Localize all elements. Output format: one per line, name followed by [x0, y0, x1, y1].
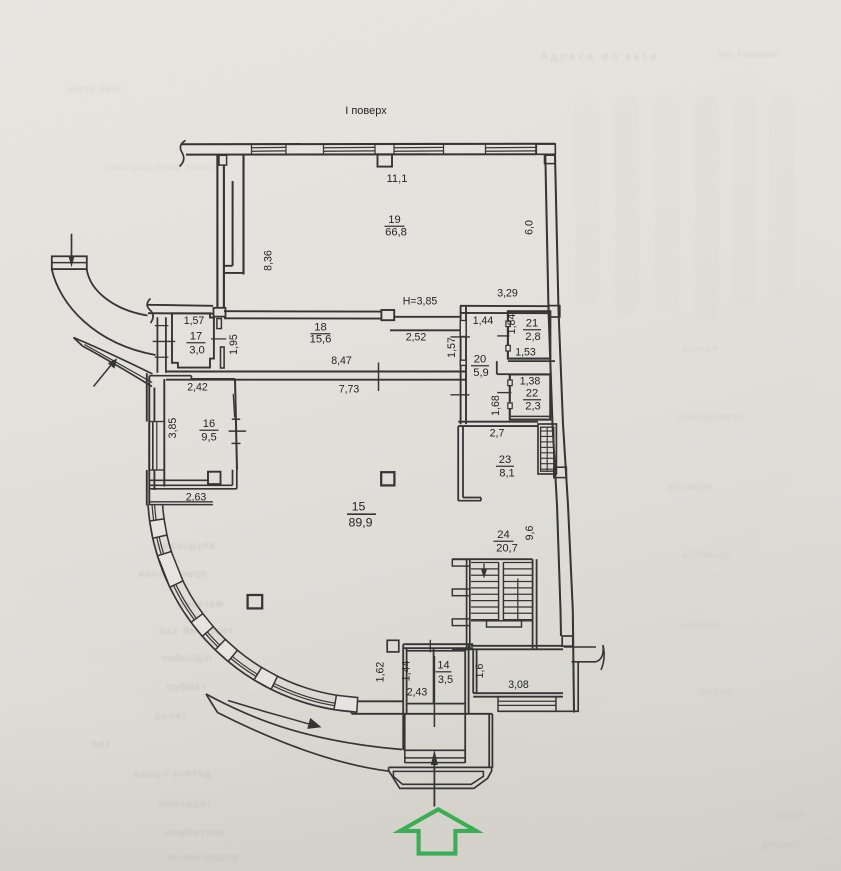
svg-text:1,84: 1,84 [506, 314, 518, 335]
svg-text:Н=3,85: Н=3,85 [403, 296, 438, 308]
svg-text:22: 22 [526, 388, 538, 400]
svg-text:зал: зал [90, 738, 110, 750]
svg-text:примітки: примітки [681, 550, 729, 561]
svg-text:89,9: 89,9 [348, 516, 372, 530]
svg-text:2,63: 2,63 [186, 492, 207, 504]
svg-text:роздягальня: роздягальня [166, 851, 237, 863]
svg-text:20: 20 [474, 354, 486, 366]
svg-text:3,0: 3,0 [189, 345, 205, 357]
svg-text:корисна: корисна [668, 482, 712, 493]
svg-text:24: 24 [497, 529, 509, 541]
svg-text:2,7: 2,7 [490, 428, 505, 440]
svg-text:66,8: 66,8 [385, 227, 407, 239]
svg-text:9,5: 9,5 [201, 432, 217, 444]
svg-text:8,47: 8,47 [331, 355, 352, 367]
svg-text:1,68: 1,68 [490, 395, 502, 416]
svg-text:2,52: 2,52 [406, 332, 427, 344]
svg-text:1,44: 1,44 [473, 315, 494, 327]
svg-text:реєстраційний запис: реєстраційний запис [105, 162, 215, 173]
svg-text:2,42: 2,42 [187, 382, 208, 394]
svg-text:16: 16 [203, 418, 215, 430]
svg-text:І поверх: І поверх [345, 105, 387, 117]
svg-text:разом: разом [699, 687, 732, 698]
svg-text:1,38: 1,38 [520, 376, 541, 388]
svg-text:2,8: 2,8 [525, 331, 541, 343]
svg-text:склад: склад [153, 710, 186, 722]
svg-text:печатка: печатка [762, 840, 798, 851]
svg-text:17: 17 [190, 331, 202, 343]
svg-text:приміщення: приміщення [677, 412, 743, 423]
svg-text:20,7: 20,7 [496, 543, 518, 555]
svg-text:тамбур: тамбур [166, 681, 206, 693]
svg-text:1,53: 1,53 [515, 347, 536, 359]
svg-text:11,1: 11,1 [387, 173, 408, 185]
svg-text:21: 21 [526, 318, 538, 330]
svg-text:19: 19 [388, 214, 400, 226]
svg-text:1,57: 1,57 [184, 315, 205, 327]
svg-text:вул. Гарматна: вул. Гарматна [719, 49, 778, 59]
svg-text:підпис: підпис [775, 810, 804, 821]
svg-text:2,43: 2,43 [407, 687, 428, 699]
svg-text:балкон: балкон [681, 619, 719, 631]
svg-text:14: 14 [437, 660, 449, 672]
svg-text:6,0: 6,0 [524, 220, 536, 235]
svg-text:гардероб: гардероб [158, 798, 211, 810]
svg-text:9,6: 9,6 [524, 526, 536, 541]
svg-text:площа: площа [682, 344, 718, 355]
svg-text:3,29: 3,29 [497, 288, 518, 300]
svg-text:Адреса об'єкта: Адреса об'єкта [541, 51, 660, 63]
svg-text:15,6: 15,6 [310, 334, 332, 346]
svg-text:23: 23 [499, 454, 511, 466]
svg-text:дитяча ігрова: дитяча ігрова [133, 768, 212, 780]
svg-text:1,44: 1,44 [401, 661, 413, 682]
svg-text:7,73: 7,73 [339, 384, 360, 396]
svg-text:1,95: 1,95 [228, 334, 240, 355]
svg-text:вестибюль: вестибюль [163, 827, 224, 839]
svg-text:підсобне: підсобне [160, 652, 211, 664]
svg-text:8,1: 8,1 [499, 468, 515, 480]
svg-text:1,57: 1,57 [446, 337, 458, 358]
svg-text:3,85: 3,85 [167, 418, 179, 439]
svg-text:2,3: 2,3 [525, 401, 541, 413]
svg-text:1,6: 1,6 [474, 664, 486, 679]
svg-text:1,62: 1,62 [375, 662, 387, 683]
svg-text:місто Київ: місто Київ [68, 84, 122, 95]
svg-text:5,9: 5,9 [473, 367, 489, 379]
svg-text:3,5: 3,5 [438, 674, 453, 686]
svg-text:8,36: 8,36 [263, 250, 275, 271]
svg-text:вбудоване: вбудоване [155, 540, 215, 552]
svg-text:3,08: 3,08 [508, 679, 529, 691]
svg-text:18: 18 [314, 322, 326, 334]
svg-text:15: 15 [352, 500, 366, 514]
